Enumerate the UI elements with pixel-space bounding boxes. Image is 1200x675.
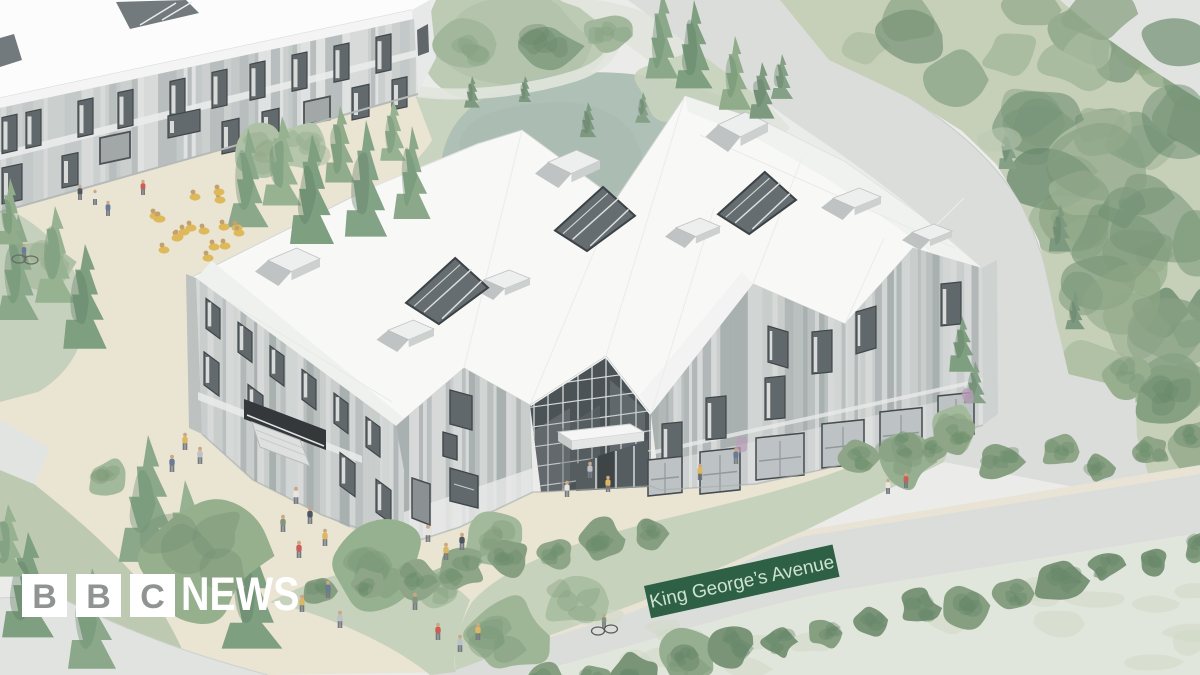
svg-text:B: B bbox=[86, 578, 111, 616]
svg-text:C: C bbox=[140, 578, 165, 616]
svg-text:NEWS: NEWS bbox=[181, 569, 299, 621]
svg-text:B: B bbox=[32, 578, 57, 616]
